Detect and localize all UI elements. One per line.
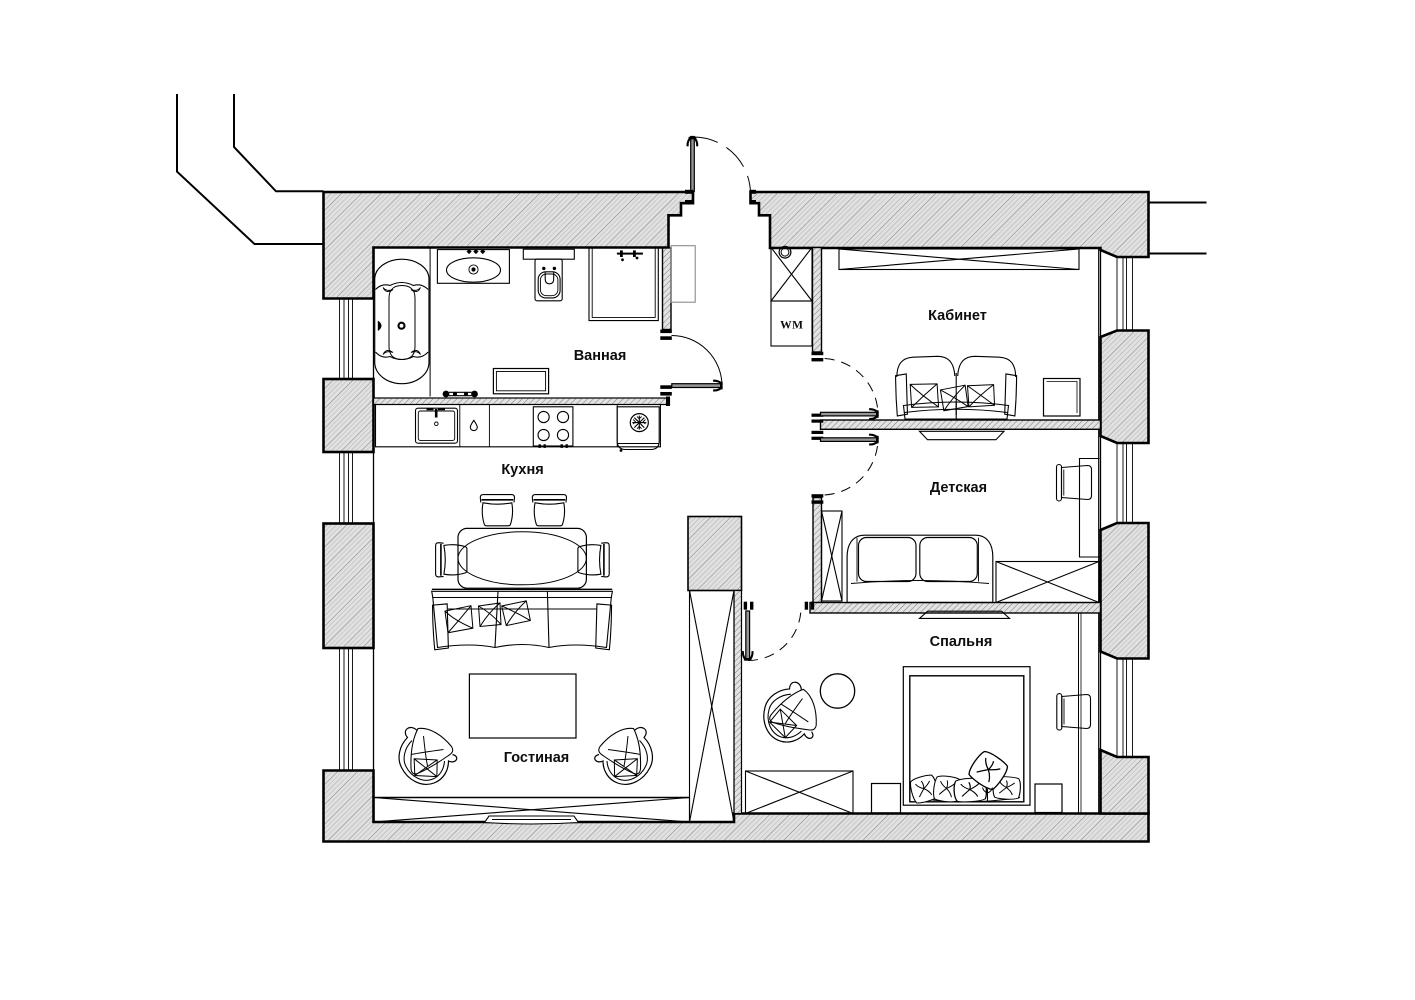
svg-text:Ванная: Ванная (574, 348, 627, 364)
svg-text:WM: WM (780, 320, 803, 332)
svg-text:Гостиная: Гостиная (504, 750, 570, 766)
svg-text:Детская: Детская (930, 480, 987, 496)
svg-text:Кухня: Кухня (501, 462, 543, 478)
svg-text:Спальня: Спальня (930, 634, 993, 650)
svg-text:Кабинет: Кабинет (928, 308, 987, 324)
